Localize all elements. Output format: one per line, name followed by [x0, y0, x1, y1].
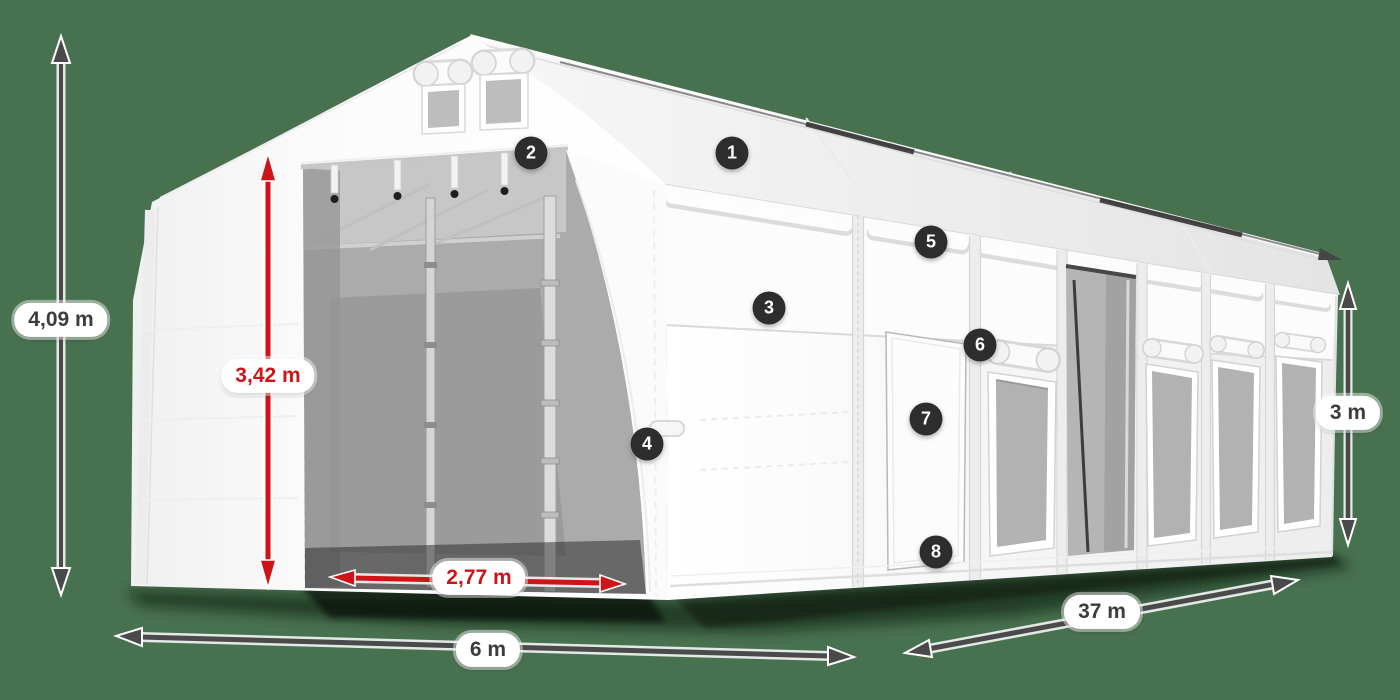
feature-hotspot-7[interactable]: 7 — [910, 403, 943, 436]
feature-hotspot-2[interactable]: 2 — [515, 137, 548, 170]
dimension-label-side-height: 3 m — [1316, 396, 1380, 430]
dimension-label-total-height: 4,09 m — [14, 303, 107, 337]
feature-hotspot-6[interactable]: 6 — [964, 329, 997, 362]
tent-dimension-diagram: 4,09 m 3,42 m 2,77 m 6 m 37 m 3 m 1 2 3 … — [0, 0, 1400, 700]
feature-hotspot-3[interactable]: 3 — [753, 292, 786, 325]
feature-hotspot-1[interactable]: 1 — [716, 137, 749, 170]
feature-hotspot-8[interactable]: 8 — [920, 536, 953, 569]
tent-illustration — [0, 0, 1400, 700]
dimension-label-length: 37 m — [1064, 595, 1140, 629]
side-door-panel — [886, 332, 966, 570]
side-window-3 — [1210, 336, 1264, 538]
vent-window-left — [422, 84, 465, 134]
vent-roll-left — [414, 60, 472, 86]
dimension-label-door-width: 2,77 m — [432, 561, 525, 595]
feature-hotspot-5[interactable]: 5 — [915, 226, 948, 259]
interior-pole-far — [424, 198, 437, 588]
side-window-4 — [1275, 333, 1326, 533]
feature-hotspot-4[interactable]: 4 — [631, 428, 664, 461]
dimension-label-inner-height: 3,42 m — [221, 359, 314, 393]
vent-roll-right — [472, 49, 534, 75]
side-doorway — [1066, 266, 1136, 556]
interior-back-wall — [330, 288, 566, 556]
interior-pole-near — [541, 196, 559, 592]
vent-window-right — [480, 73, 528, 130]
dimension-label-front-width: 6 m — [456, 633, 520, 667]
